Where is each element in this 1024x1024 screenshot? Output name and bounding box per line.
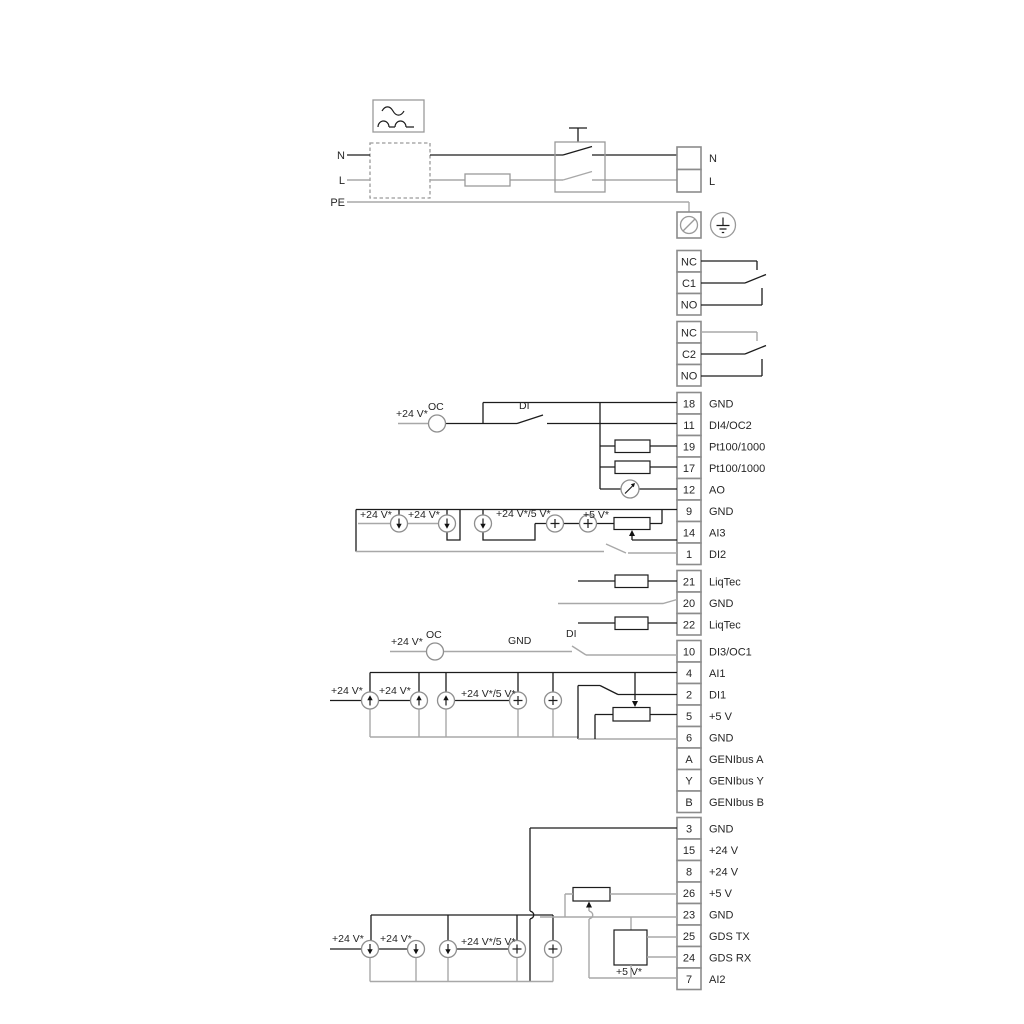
- gds-sensor-box: [614, 930, 647, 965]
- terminal-label: LiqTec: [709, 620, 741, 632]
- relay1-terminals: NC C1 NO: [677, 251, 701, 316]
- terminal-number: 17: [683, 463, 695, 475]
- terminal-row: 25 GDS TX: [677, 925, 750, 947]
- terminal-number: 7: [686, 974, 692, 986]
- mains-wiring-gray: [347, 172, 689, 213]
- terminal-number: 11: [683, 420, 694, 432]
- label-plus24: +24 V*: [331, 685, 363, 697]
- label-plus24: +24 V*: [380, 933, 412, 945]
- label-plus24or5: +24 V*/5 V*: [461, 688, 516, 700]
- label-n-out: N: [709, 153, 717, 165]
- pt100-wiring: [600, 440, 677, 474]
- relay2-nc-label: NC: [681, 328, 697, 340]
- terminal-row: 15 +24 V: [677, 839, 739, 861]
- relay2-common-label: C2: [682, 349, 696, 361]
- terminal-label: GDS RX: [709, 953, 752, 965]
- terminal-label: AI3: [709, 528, 726, 540]
- terminal-row: B GENIbus B: [677, 791, 764, 813]
- oc-open-collector-icon: [427, 643, 444, 660]
- terminal-number: 14: [683, 528, 695, 540]
- terminal-number: 2: [686, 690, 692, 702]
- terminal-row: Y GENIbus Y: [677, 770, 764, 792]
- label-plus24: +24 V*: [408, 509, 440, 521]
- terminal-number: Y: [685, 776, 693, 788]
- terminal-row: 2 DI1: [677, 684, 726, 706]
- terminal-label: GND: [709, 598, 734, 610]
- resistor-symbol: [615, 461, 650, 474]
- terminal-label: GENIbus B: [709, 797, 764, 809]
- label-plus24or5: +24 V*/5 V*: [496, 508, 551, 520]
- label-plus24: +24 V*: [396, 408, 428, 420]
- terminal-number: 8: [686, 867, 692, 879]
- ac-filter-icon: [373, 100, 424, 132]
- terminal-label: Pt100/1000: [709, 442, 765, 454]
- terminal-row: 19 Pt100/1000: [677, 436, 765, 458]
- terminal-row: 24 GDS RX: [677, 947, 752, 969]
- terminal-label: DI1: [709, 690, 726, 702]
- terminal-number: A: [685, 754, 693, 766]
- relay1-common-label: C1: [682, 278, 696, 290]
- terminal-number: 19: [683, 442, 695, 454]
- oc-di-mid-wiring: [390, 643, 677, 660]
- mains-filter-box: [370, 143, 430, 198]
- terminal-row: 9 GND: [677, 500, 734, 522]
- terminal-row: 6 GND: [677, 727, 734, 749]
- terminal-row: 17 Pt100/1000: [677, 457, 765, 479]
- terminal-label: AO: [709, 485, 725, 497]
- relay2-terminals: NC C2 NO: [677, 322, 701, 387]
- terminal-label: +24 V: [709, 845, 739, 857]
- terminal-number: 18: [683, 399, 695, 411]
- terminal-row: 7 AI2: [677, 968, 726, 990]
- terminal-row: 3 GND: [677, 818, 734, 840]
- terminal-number: 5: [686, 711, 692, 723]
- terminal-row: 20 GND: [677, 592, 734, 614]
- analog-mid-wiring: [330, 673, 677, 740]
- terminal-row: 23 GND: [677, 904, 734, 926]
- label-gnd: GND: [508, 635, 532, 647]
- oc-open-collector-icon: [429, 415, 446, 432]
- terminal-number: 1: [686, 549, 692, 561]
- terminal-label: GND: [709, 824, 734, 836]
- terminal-number: 24: [683, 953, 695, 965]
- label-plus24: +24 V*: [360, 509, 392, 521]
- label-n-in: N: [337, 150, 345, 162]
- power-terminal-n: N: [677, 147, 717, 170]
- terminal-row: 22 LiqTec: [677, 614, 741, 636]
- plus-source-icon: [509, 941, 562, 958]
- terminal-label: GND: [709, 399, 734, 411]
- label-oc: OC: [426, 629, 442, 641]
- terminal-label: GND: [709, 506, 734, 518]
- plus-source-icon: [510, 692, 562, 709]
- terminal-number: 23: [683, 910, 695, 922]
- label-pe: PE: [330, 197, 345, 209]
- gauge-icon: [600, 480, 677, 498]
- potentiometer-symbol: [614, 518, 650, 530]
- wiring-diagram-svg: N L PE N L NC C1 NO NC C2 NO: [0, 0, 1024, 1024]
- relay2-no-label: NO: [681, 371, 698, 383]
- relay1-nc-label: NC: [681, 257, 697, 269]
- label-l-out: L: [709, 176, 715, 188]
- terminal-row: 5 +5 V: [677, 705, 733, 727]
- terminal-label: GND: [709, 733, 734, 745]
- terminal-row: 11 DI4/OC2: [677, 414, 752, 436]
- label-di: DI: [566, 628, 577, 640]
- potentiometer-symbol: [573, 888, 610, 902]
- label-l-in: L: [339, 175, 345, 187]
- label-oc: OC: [428, 401, 444, 413]
- potentiometer-symbol: [613, 708, 650, 722]
- terminal-number: 10: [683, 647, 695, 659]
- resistor-symbol: [615, 617, 648, 630]
- terminal-number: 6: [686, 733, 692, 745]
- analog-bottom-wiring: [330, 828, 677, 982]
- terminal-row: 18 GND: [677, 393, 734, 415]
- terminal-label: GND: [709, 910, 734, 922]
- terminal-label: +24 V: [709, 867, 739, 879]
- terminal-row: 12 AO: [677, 479, 725, 501]
- resistor-symbol: [615, 575, 648, 588]
- terminal-label: GENIbus A: [709, 754, 764, 766]
- terminal-number: 22: [683, 620, 695, 632]
- label-plus24or5: +24 V*/5 V*: [461, 936, 516, 948]
- fuse-symbol: [465, 174, 510, 186]
- resistor-symbol: [615, 440, 650, 453]
- relay2-contact-wiring: [701, 332, 766, 376]
- terminal-number: 15: [683, 845, 695, 857]
- label-plus5: +5 V*: [583, 509, 609, 521]
- earth-icon: [711, 213, 736, 238]
- terminal-number: 4: [686, 668, 692, 680]
- terminal-label: GENIbus Y: [709, 776, 764, 788]
- terminal-row: 14 AI3: [677, 522, 726, 544]
- label-plus5: +5 V*: [616, 966, 642, 978]
- terminal-number: 3: [686, 824, 692, 836]
- terminal-number: 25: [683, 931, 695, 943]
- current-source-icon: [391, 515, 492, 532]
- label-plus24: +24 V*: [391, 636, 423, 648]
- terminal-number: 12: [683, 485, 695, 497]
- terminal-number: 21: [683, 577, 695, 589]
- terminal-label: AI1: [709, 668, 726, 680]
- terminal-row: 8 +24 V: [677, 861, 739, 883]
- label-plus24: +24 V*: [379, 685, 411, 697]
- terminal-label: DI3/OC1: [709, 647, 752, 659]
- terminal-row: 26 +5 V: [677, 882, 733, 904]
- terminal-label: AI2: [709, 974, 726, 986]
- terminal-label: DI4/OC2: [709, 420, 752, 432]
- relay1-no-label: NO: [681, 300, 698, 312]
- terminal-row: 1 DI2: [677, 543, 726, 565]
- terminal-row: A GENIbus A: [677, 748, 764, 770]
- label-di: DI: [519, 400, 530, 412]
- terminal-row: 4 AI1: [677, 662, 726, 684]
- terminal-number: 26: [683, 888, 695, 900]
- liqtec-wiring: [558, 575, 677, 630]
- terminal-label: Pt100/1000: [709, 463, 765, 475]
- wiring-diagram: N L PE N L NC C1 NO NC C2 NO: [0, 0, 1024, 1024]
- terminal-label: GDS TX: [709, 931, 750, 943]
- label-plus24: +24 V*: [332, 933, 364, 945]
- relay1-contact-wiring: [701, 261, 766, 305]
- terminal-row: 10 DI3/OC1: [677, 641, 752, 663]
- terminal-number: 20: [683, 598, 695, 610]
- terminal-label: LiqTec: [709, 577, 741, 589]
- power-terminal-l: L: [677, 170, 715, 193]
- terminal-label: +5 V: [709, 888, 733, 900]
- terminal-label: +5 V: [709, 711, 733, 723]
- terminal-number: 9: [686, 506, 692, 518]
- terminal-number: B: [685, 797, 692, 809]
- pe-screw-icon: [677, 212, 701, 238]
- terminal-row: 21 LiqTec: [677, 571, 741, 593]
- terminal-label: DI2: [709, 549, 726, 561]
